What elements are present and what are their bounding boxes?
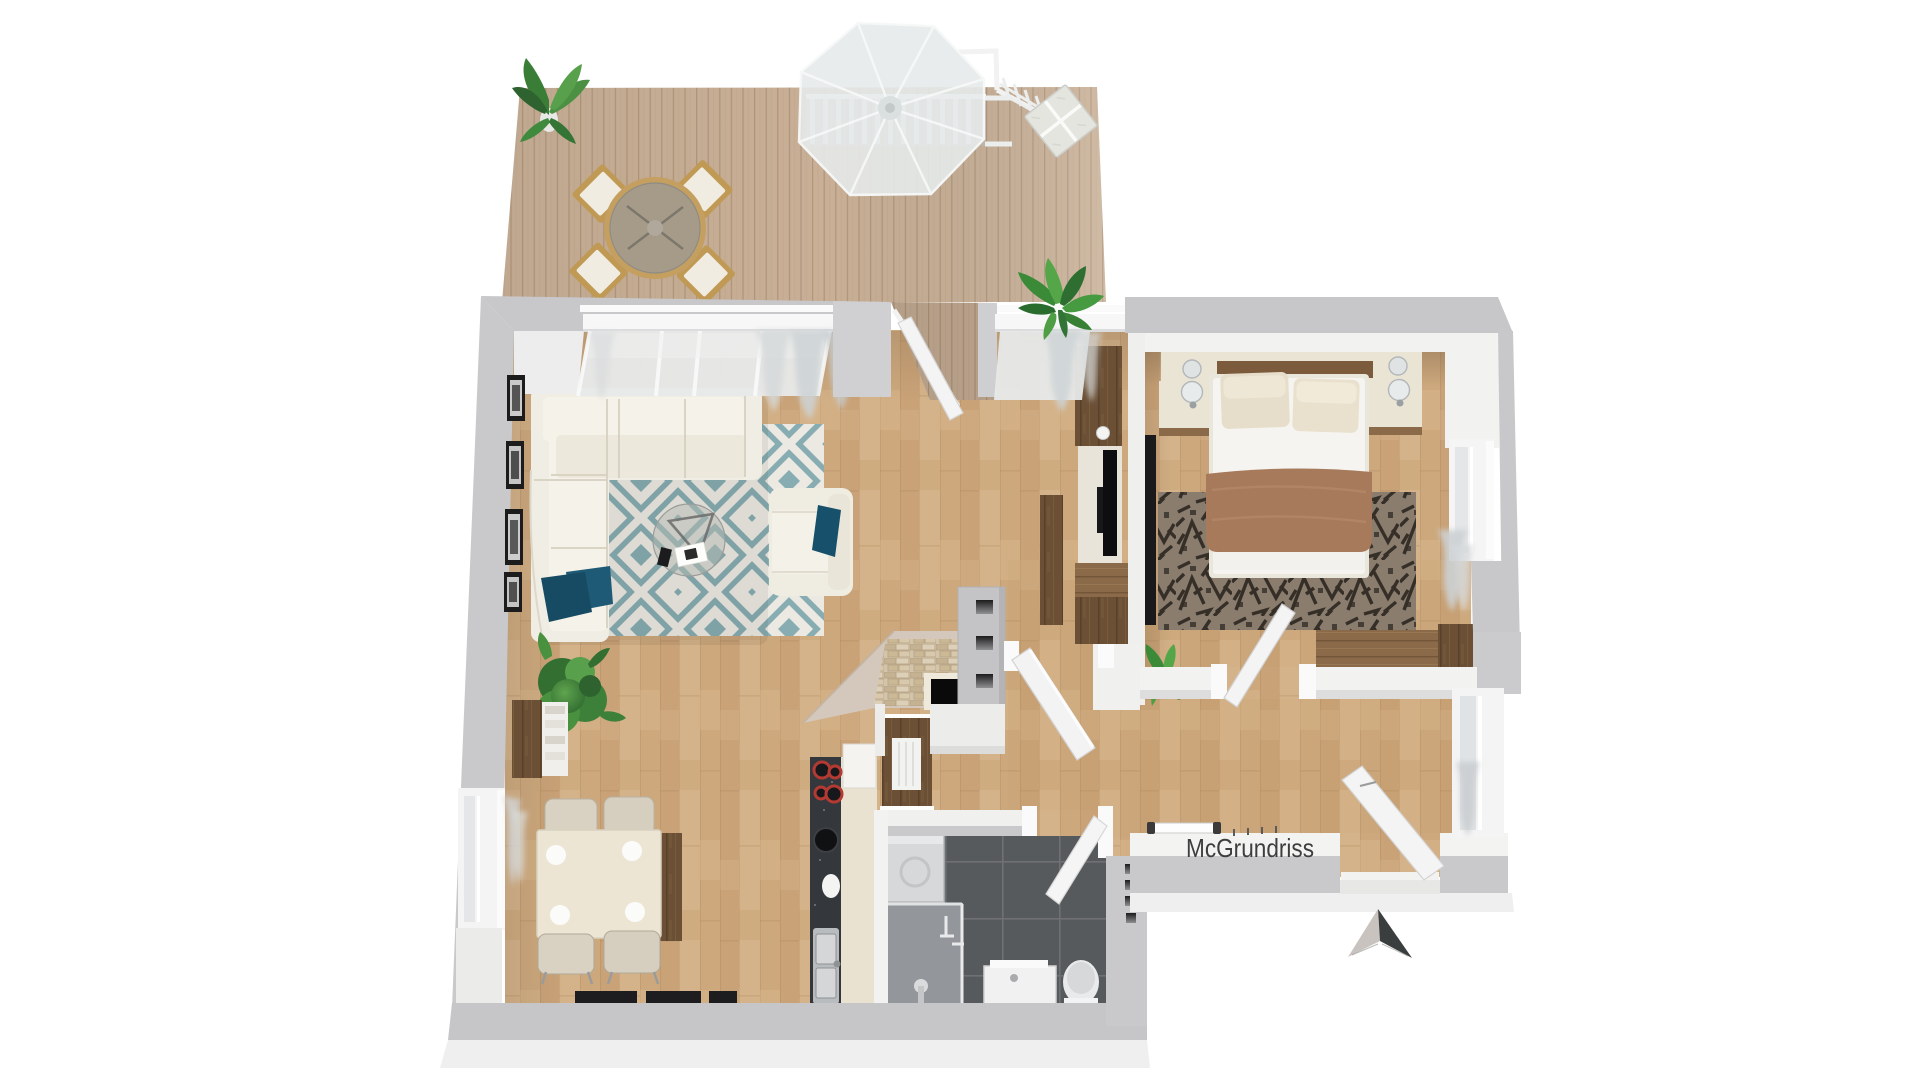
svg-text:McGrundriss: McGrundriss (1186, 833, 1314, 863)
